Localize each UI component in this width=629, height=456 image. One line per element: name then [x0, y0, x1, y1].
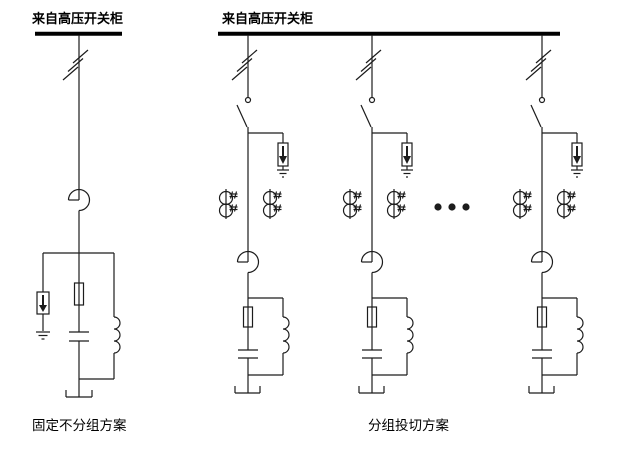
fixed-scheme-diagram: 来自高压开关柜 [31, 11, 127, 434]
feeder-branch-3 [514, 35, 584, 393]
surge-arrester-icon [37, 292, 49, 331]
feeder-branch-2 [344, 35, 414, 393]
right-caption: 分组投切方案 [368, 417, 449, 434]
earth-icon [36, 332, 50, 339]
schematic-canvas: 来自高压开关柜 [0, 0, 629, 456]
feeder-branch-1 [220, 35, 290, 393]
phase-slashes-icon [63, 50, 88, 80]
left-caption: 固定不分组方案 [32, 417, 127, 434]
ellipsis-dots-icon [434, 203, 469, 210]
right-source-label: 来自高压开关柜 [221, 11, 313, 27]
left-source-label: 来自高压开关柜 [31, 11, 123, 27]
capacitor-icon [69, 332, 89, 341]
grouped-scheme-diagram: 来自高压开关柜 分组投切方案 [218, 11, 583, 434]
series-reactor-icon [114, 253, 120, 379]
